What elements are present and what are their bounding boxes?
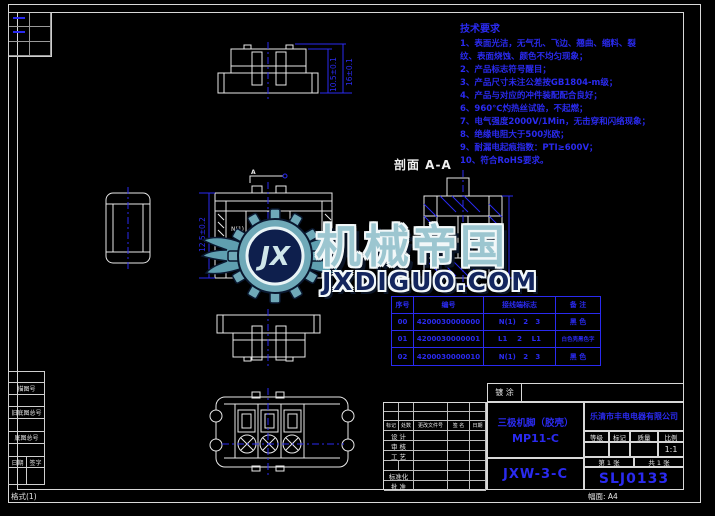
- cad-sheet: 技术要求 1、表面光洁，无气孔、飞边、翘曲、缩料、裂 纹、表面烧蚀、颜色不均匀现…: [0, 0, 715, 516]
- top-view: 10.5±0.1 16±0.1: [218, 42, 354, 99]
- drawing-views: 10.5±0.1 16±0.1 A: [0, 0, 715, 516]
- section-arrow-label: A: [251, 169, 256, 176]
- section-aa-view: [424, 170, 513, 286]
- terminal-mark-3: 3: [287, 226, 291, 233]
- dim-top-overall: 16±0.1: [345, 58, 354, 86]
- terminal-mark-n1: N(1): [231, 226, 244, 233]
- face-view: [210, 388, 354, 476]
- dim-front-height: 12.5±0.2: [198, 217, 207, 252]
- dim-top-height: 10.5±0.1: [329, 57, 338, 92]
- front-view: A N(1) 2 3 12.5±0.2: [198, 169, 332, 286]
- side-view: [106, 187, 150, 269]
- bottom-profile-view: [217, 309, 320, 369]
